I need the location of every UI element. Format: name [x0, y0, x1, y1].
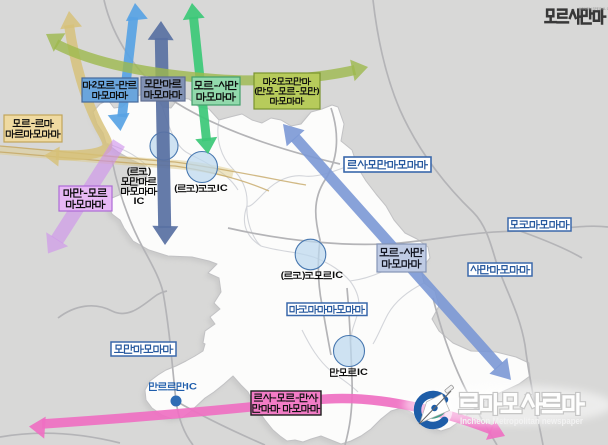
svg-text:-: - — [115, 80, 119, 90]
svg-text:IC: IC — [134, 196, 146, 206]
svg-text:2: 2 — [272, 76, 277, 86]
svg-text:-: - — [399, 247, 404, 258]
svg-text:IC: IC — [332, 270, 344, 280]
svg-text:-: - — [296, 86, 300, 96]
svg-text:(: ( — [254, 86, 257, 96]
svg-text:IC: IC — [186, 381, 198, 391]
svg-text:-: - — [214, 80, 219, 91]
svg-text:): ) — [317, 86, 320, 96]
svg-text:): ) — [302, 270, 305, 280]
svg-text:): ) — [148, 166, 151, 176]
svg-text:(: ( — [127, 166, 130, 176]
svg-text:YONGIN SPECIAL CITY: YONGIN SPECIAL CITY — [579, 7, 608, 11]
svg-text:Incheon Metropolitan newspaper: Incheon Metropolitan newspaper — [460, 416, 584, 426]
svg-text:IC: IC — [217, 183, 229, 193]
svg-text:(: ( — [281, 270, 284, 280]
svg-text:-: - — [272, 393, 277, 403]
svg-text:-: - — [274, 86, 278, 96]
svg-text:-: - — [31, 118, 36, 128]
svg-text:-: - — [295, 393, 300, 403]
svg-text:): ) — [196, 183, 199, 193]
svg-text:-: - — [83, 188, 88, 199]
svg-text:(: ( — [174, 183, 177, 193]
svg-text:2: 2 — [92, 80, 97, 90]
svg-text:IC: IC — [357, 367, 369, 377]
